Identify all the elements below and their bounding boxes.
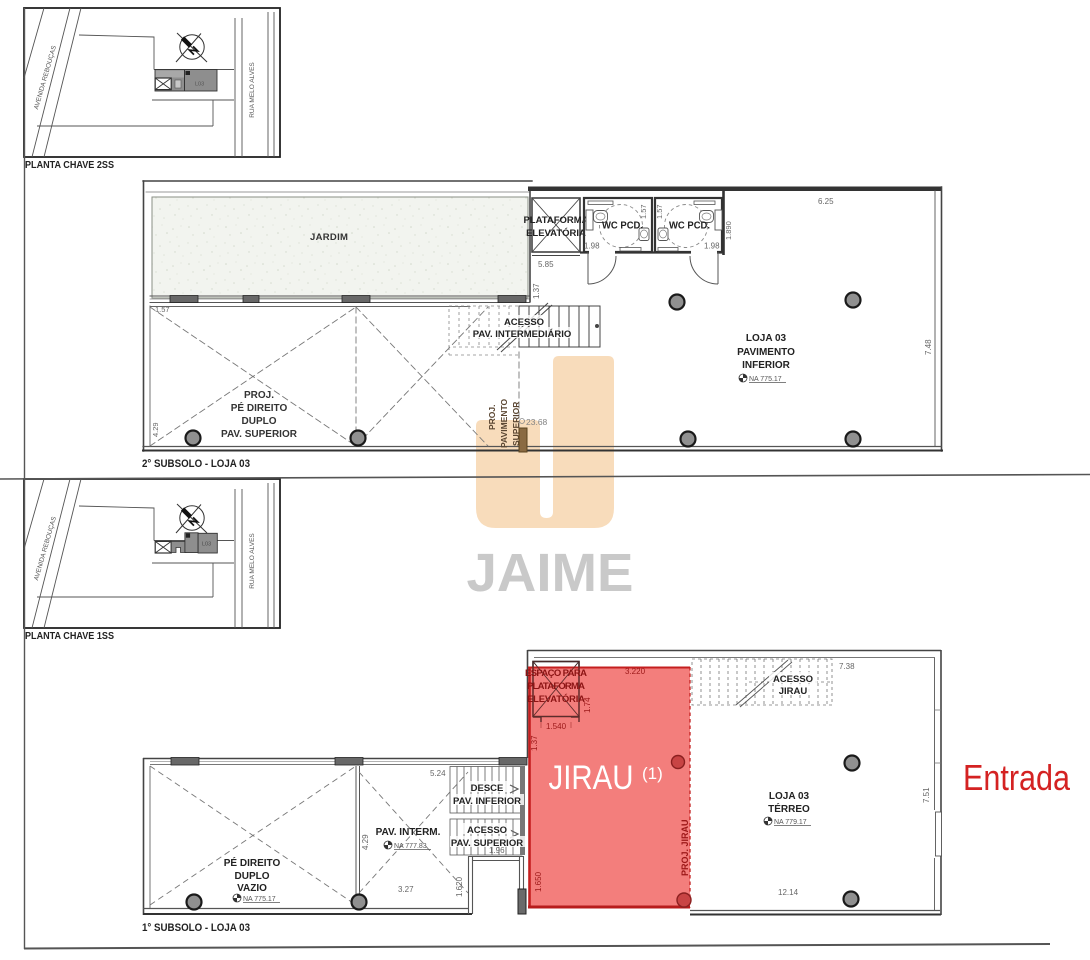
svg-text:1.620: 1.620 (455, 876, 464, 897)
svg-text:PAV. INTERMEDIÁRIO: PAV. INTERMEDIÁRIO (473, 329, 572, 340)
svg-text:INFERIOR: INFERIOR (742, 360, 791, 371)
svg-text:1.540: 1.540 (546, 722, 567, 731)
svg-text:PLANTA CHAVE 2SS: PLANTA CHAVE 2SS (25, 160, 114, 171)
svg-text:1.57: 1.57 (155, 305, 170, 314)
svg-text:LOJA 03: LOJA 03 (769, 791, 810, 802)
svg-text:PAV. INFERIOR: PAV. INFERIOR (453, 796, 521, 807)
svg-text:PAVIMENTO: PAVIMENTO (737, 347, 795, 358)
svg-text:5.24: 5.24 (430, 769, 446, 778)
svg-text:DESCE: DESCE (471, 783, 504, 794)
svg-text:1.37: 1.37 (532, 283, 541, 299)
svg-text:L03: L03 (195, 82, 204, 88)
svg-text:1.890: 1.890 (724, 221, 733, 240)
svg-text:PAV. SUPERIOR: PAV. SUPERIOR (221, 429, 298, 440)
svg-text:4.29: 4.29 (151, 422, 160, 437)
svg-text:PLATAFORMA: PLATAFORMA (527, 681, 585, 692)
svg-text:JARDIM: JARDIM (310, 232, 348, 243)
svg-text:PROJ.: PROJ. (487, 404, 497, 430)
svg-text:1.96: 1.96 (489, 846, 505, 855)
svg-text:3.27: 3.27 (398, 885, 414, 894)
svg-text:1.37: 1.37 (530, 735, 539, 751)
svg-text:1.650: 1.650 (534, 871, 543, 892)
svg-text:1.74: 1.74 (583, 697, 592, 713)
svg-text:Entrada: Entrada (963, 757, 1071, 798)
svg-text:PLANTA CHAVE 1SS: PLANTA CHAVE 1SS (25, 631, 114, 642)
svg-text:ACESSO: ACESSO (467, 825, 507, 836)
svg-text:JIRAU: JIRAU (549, 759, 634, 797)
svg-text:7.38: 7.38 (839, 662, 855, 671)
svg-text:2° SUBSOLO - LOJA 03: 2° SUBSOLO - LOJA 03 (142, 458, 250, 470)
svg-text:1.57: 1.57 (639, 204, 648, 219)
svg-text:7.48: 7.48 (924, 339, 933, 355)
svg-text:WC PCD.: WC PCD. (669, 221, 710, 232)
svg-text:RUA MELO ALVES: RUA MELO ALVES (249, 62, 256, 118)
svg-text:PÉ DIREITO: PÉ DIREITO (224, 856, 281, 869)
svg-text:7.51: 7.51 (922, 787, 931, 803)
svg-text:NA 775.17: NA 775.17 (749, 376, 782, 383)
svg-text:WC PCD.: WC PCD. (602, 221, 643, 232)
svg-text:4.29: 4.29 (361, 834, 370, 850)
svg-text:ESPAÇO PARA: ESPAÇO PARA (525, 668, 587, 679)
svg-text:PROJ. JIRAU: PROJ. JIRAU (680, 819, 690, 876)
svg-text:23.68: 23.68 (526, 417, 548, 427)
svg-text:ELEVATÓRIA: ELEVATÓRIA (527, 693, 585, 705)
svg-text:1.57: 1.57 (655, 204, 664, 219)
svg-text:ACESSO: ACESSO (773, 674, 813, 685)
svg-text:PLATAFORMA: PLATAFORMA (523, 215, 588, 226)
svg-text:DUPLO: DUPLO (235, 871, 270, 882)
svg-text:JAIME: JAIME (467, 543, 634, 603)
svg-text:NA 775.17: NA 775.17 (243, 896, 276, 903)
svg-text:ELEVATÓRIA: ELEVATÓRIA (526, 227, 586, 239)
svg-text:12.14: 12.14 (778, 888, 799, 897)
svg-text:RUA MELO ALVES: RUA MELO ALVES (249, 533, 256, 589)
svg-text:1° SUBSOLO - LOJA 03: 1° SUBSOLO - LOJA 03 (142, 922, 250, 934)
svg-text:PAV. SUPERIOR: PAV. SUPERIOR (451, 838, 523, 849)
svg-text:(1): (1) (642, 764, 663, 783)
svg-text:6.25: 6.25 (818, 197, 834, 206)
svg-text:TÉRREO: TÉRREO (768, 802, 810, 815)
svg-text:LOJA 03: LOJA 03 (746, 333, 787, 344)
svg-text:NA 779.17: NA 779.17 (774, 819, 807, 826)
svg-text:L03: L03 (202, 542, 211, 548)
svg-text:VAZIO: VAZIO (237, 883, 267, 894)
svg-text:NA 777.83: NA 777.83 (394, 843, 427, 850)
svg-text:ACESSO: ACESSO (504, 317, 544, 328)
svg-text:JIRAU: JIRAU (779, 686, 808, 697)
svg-text:5.85: 5.85 (538, 260, 554, 269)
svg-text:PAV. INTERM.: PAV. INTERM. (376, 827, 441, 838)
svg-text:3.220: 3.220 (625, 667, 646, 676)
svg-text:PROJ.: PROJ. (244, 390, 274, 401)
svg-text:PAVIMENTO: PAVIMENTO (499, 398, 509, 448)
svg-text:PÉ DIREITO: PÉ DIREITO (231, 401, 288, 414)
svg-text:DUPLO: DUPLO (242, 416, 277, 427)
